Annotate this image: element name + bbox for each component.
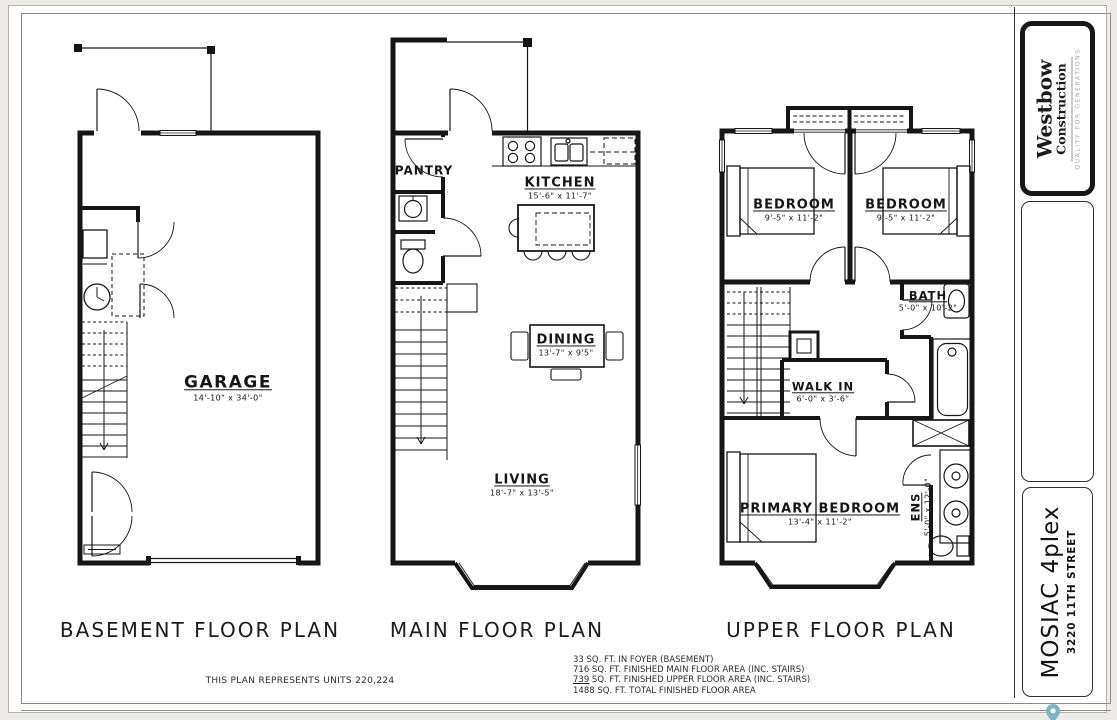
- toilet-icon: [929, 536, 969, 556]
- room-dims: 5'-0" x 10'-2": [899, 304, 957, 313]
- kitchen-sink-icon: [551, 138, 587, 165]
- storage-doors: [92, 472, 132, 556]
- laundry-chase: [790, 332, 818, 360]
- room-dims: 9'-5" x 11'-2": [765, 215, 823, 224]
- room-dims: 14'-10" x 34'-0": [193, 394, 262, 403]
- room-dims: 5'-0" x 12'-0": [924, 478, 933, 536]
- title-block-empty-box: [1021, 201, 1094, 482]
- primary-door: [820, 418, 856, 456]
- room-label-living: LIVING 18'-7" x 13'-5": [490, 473, 554, 498]
- basement-walls: [80, 131, 321, 566]
- powder-sink-icon: [399, 196, 427, 221]
- furnace-icon: [83, 230, 107, 264]
- room-name: GARAGE: [184, 373, 272, 392]
- stairs: [82, 322, 127, 458]
- room-dims: 15'-6" x 11'-7": [528, 193, 592, 202]
- brand-name-line2: Construction: [1054, 48, 1068, 169]
- room-label-ensuite: ENS 5'-0" x 12'-0": [909, 478, 932, 536]
- entry-door: [97, 89, 139, 131]
- room-name: PANTRY: [395, 164, 453, 177]
- room-name: PRIMARY BEDROOM: [740, 502, 900, 516]
- area-upper-number: 739: [573, 675, 589, 685]
- room-name: LIVING: [494, 473, 550, 487]
- area-upper-text: SQ. FT. FINISHED UPPER FLOOR AREA (INC. …: [589, 675, 810, 685]
- room-label-walk-in: WALK IN 6'-0" x 3'-6": [792, 380, 854, 403]
- window: [160, 131, 196, 136]
- area-line-upper: 739 SQ. FT. FINISHED UPPER FLOOR AREA (I…: [573, 675, 810, 685]
- room-dims: 18'-7" x 13'-5": [490, 490, 554, 499]
- shower-icon: [913, 420, 969, 446]
- area-summary-notes: 33 SQ. FT. IN FOYER (BASEMENT) 716 SQ. F…: [573, 655, 810, 696]
- room-dims: 13'-4" x 11'-2": [788, 519, 852, 528]
- entry-door: [450, 89, 492, 131]
- bay-window: [720, 563, 975, 587]
- brand-tagline: QUALITY FOR GENERATIONS: [1074, 48, 1081, 169]
- room-label-primary-bedroom: PRIMARY BEDROOM 13'-4" x 11'-2": [740, 502, 900, 527]
- room-name: KITCHEN: [525, 176, 596, 190]
- bay-window: [455, 563, 588, 588]
- area-line-basement: 33 SQ. FT. IN FOYER (BASEMENT): [573, 655, 810, 665]
- room-name: ENS: [909, 493, 922, 522]
- brand-rule: [1071, 56, 1072, 161]
- room-name: BATH: [909, 289, 947, 302]
- closet-bumpout: [786, 106, 913, 131]
- project-info-box: MOSIAC 4plex 3220 11TH STREET: [1022, 487, 1093, 697]
- room-name: BEDROOM: [865, 198, 947, 212]
- window: [635, 445, 641, 505]
- window: [720, 129, 975, 173]
- drawing-frame-bottom-line: [21, 710, 1111, 711]
- builder-logo-box: Westbow Construction QUALITY FOR GENERAT…: [1020, 21, 1095, 196]
- room-name: DINING: [537, 333, 596, 347]
- main-walls: [391, 131, 641, 566]
- toilet-icon: [401, 240, 425, 273]
- room-label-kitchen: KITCHEN 15'-6" x 11'-7": [525, 176, 596, 201]
- stairs: [395, 284, 477, 460]
- room-label-pantry: PANTRY: [395, 164, 453, 177]
- room-dims: 13'-7" x 9'5": [538, 350, 593, 359]
- bench: [84, 545, 120, 554]
- garage-door: [146, 556, 301, 565]
- main-plan-title: MAIN FLOOR PLAN: [390, 618, 604, 642]
- area-line-total: 1488 SQ. FT. TOTAL FINISHED FLOOR AREA: [573, 686, 810, 696]
- bathtub-icon: [933, 339, 972, 420]
- room-dims: 6'-0" x 3'-6": [797, 395, 850, 404]
- project-info: MOSIAC 4plex 3220 11TH STREET: [1038, 505, 1078, 678]
- area-line-main: 716 SQ. FT. FINISHED MAIN FLOOR AREA (IN…: [573, 665, 810, 675]
- main-plan-drawing: [380, 20, 650, 595]
- kitchen-counter: [492, 138, 638, 166]
- drawing-sheet-page: GARAGE 14'-10" x 34'-0" PANTRY KITCHEN 1…: [0, 0, 1117, 720]
- project-name: MOSIAC 4plex: [1038, 505, 1064, 678]
- kitchen-island: [509, 205, 594, 260]
- double-vanity-icon: [940, 450, 972, 543]
- project-address: 3220 11TH STREET: [1066, 505, 1078, 678]
- mech-area-dashed: [112, 254, 144, 316]
- porch-outline: [74, 44, 215, 131]
- walkin-door: [887, 374, 915, 402]
- basement-plan-drawing: [60, 30, 340, 600]
- interior-walls: [393, 133, 443, 283]
- brand-name-line1: Westbow: [1034, 48, 1054, 169]
- units-note: THIS PLAN REPRESENTS UNITS 220,224: [206, 676, 395, 686]
- stove-icon: [503, 137, 541, 166]
- room-label-bedroom-right: BEDROOM 9'-5" x 11'-2": [865, 198, 947, 223]
- room-name: WALK IN: [792, 380, 854, 393]
- room-label-garage: GARAGE 14'-10" x 34'-0": [184, 373, 272, 402]
- upper-plan-title: UPPER FLOOR PLAN: [726, 618, 956, 642]
- builder-logo: Westbow Construction QUALITY FOR GENERAT…: [1034, 48, 1081, 169]
- under-stair-door: [140, 284, 174, 318]
- room-name: BEDROOM: [753, 198, 835, 212]
- room-label-bedroom-left: BEDROOM 9'-5" x 11'-2": [753, 198, 835, 223]
- water-heater-icon: [84, 284, 110, 310]
- room-label-dining: DINING 13'-7" x 9'5": [537, 333, 596, 358]
- room-label-bath: BATH 5'-0" x 10'-2": [899, 289, 957, 312]
- basement-plan-title: BASEMENT FLOOR PLAN: [60, 618, 340, 642]
- title-block-divider: [1014, 7, 1015, 698]
- location-pin-icon: [1046, 704, 1060, 720]
- bed-icon: [727, 452, 816, 542]
- mech-room-door: [138, 222, 174, 258]
- room-dims: 9'-5" x 11'-2": [877, 215, 935, 224]
- powder-door: [443, 218, 481, 256]
- porch-outline: [393, 38, 532, 134]
